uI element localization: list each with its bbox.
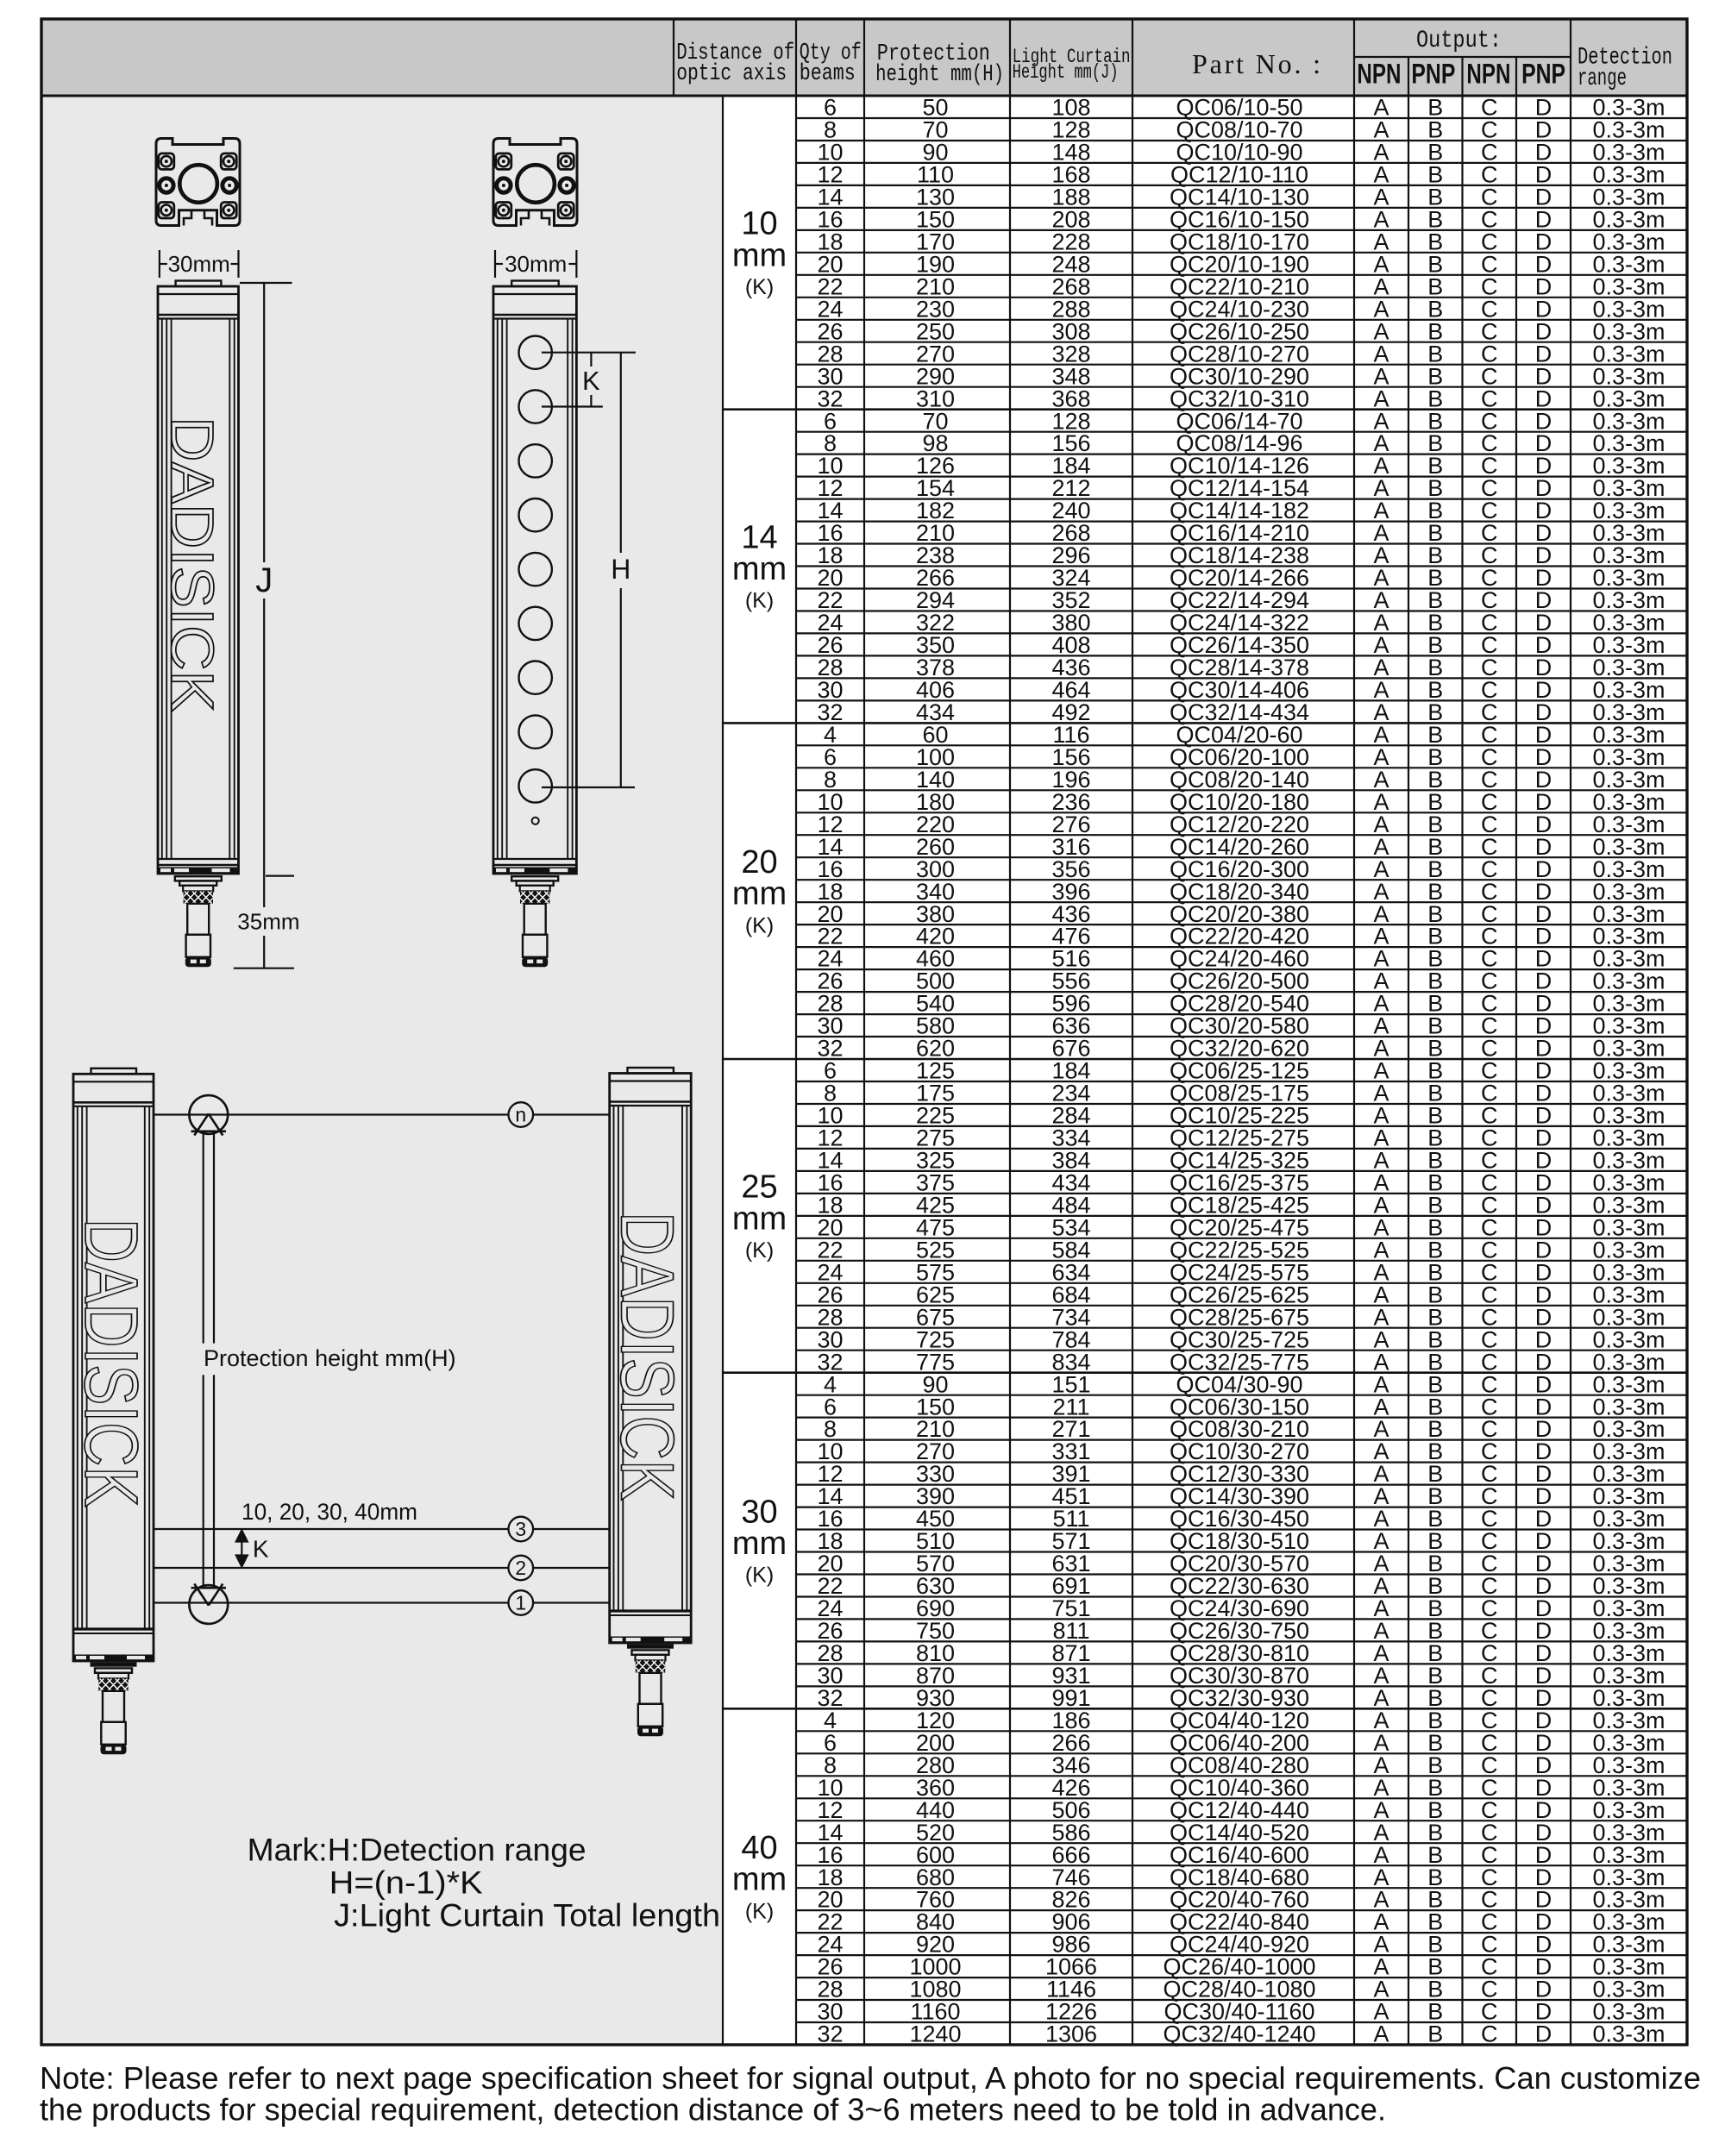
svg-text:n: n	[515, 1104, 526, 1126]
svg-text:20: 20	[741, 844, 777, 881]
svg-text:(K): (K)	[745, 1564, 774, 1588]
svg-text:beams: beams	[800, 61, 856, 87]
svg-text:H: H	[611, 554, 630, 585]
svg-text:1240: 1240	[909, 2021, 961, 2047]
svg-text:NPN: NPN	[1357, 58, 1401, 89]
svg-text:Height mm(J): Height mm(J)	[1013, 61, 1119, 84]
svg-text:3: 3	[515, 1518, 526, 1540]
svg-text:Note: Please refer to next pag: Note: Please refer to next page specific…	[40, 2060, 1701, 2096]
svg-text:(K): (K)	[745, 275, 774, 299]
svg-text:DADISICK: DADISICK	[159, 417, 226, 712]
svg-text:(K): (K)	[745, 913, 774, 937]
svg-text:K: K	[582, 366, 600, 396]
svg-text:30mm: 30mm	[505, 251, 567, 277]
svg-text:A: A	[1373, 2021, 1389, 2047]
svg-text:Output:: Output:	[1416, 28, 1502, 54]
svg-text:10: 10	[741, 206, 777, 242]
svg-text:mm: mm	[732, 237, 787, 273]
svg-text:height mm(H): height mm(H)	[875, 62, 1004, 88]
svg-text:DADISICK: DADISICK	[69, 1219, 154, 1507]
svg-text:0.3-3m: 0.3-3m	[1592, 2021, 1665, 2047]
svg-text:mm: mm	[732, 876, 787, 912]
svg-text:35mm: 35mm	[237, 909, 299, 935]
svg-text:QC32/40-1240: QC32/40-1240	[1163, 2021, 1315, 2047]
svg-text:mm: mm	[732, 1200, 787, 1237]
svg-text:(K): (K)	[745, 589, 774, 613]
svg-text:30: 30	[741, 1494, 777, 1530]
svg-text:1: 1	[515, 1592, 526, 1614]
svg-text:14: 14	[741, 519, 777, 555]
svg-text:H=(n-1)*K: H=(n-1)*K	[329, 1865, 483, 1901]
svg-text:range: range	[1578, 66, 1627, 92]
svg-text:the products for special requi: the products for special requirement, de…	[40, 2092, 1386, 2128]
svg-text:2: 2	[515, 1557, 526, 1579]
svg-text:mm: mm	[732, 1526, 787, 1562]
svg-text:10, 20, 30, 40mm: 10, 20, 30, 40mm	[241, 1499, 417, 1525]
svg-text:40: 40	[741, 1830, 777, 1866]
svg-text:Protection height mm(H): Protection height mm(H)	[204, 1345, 456, 1371]
svg-text:30mm: 30mm	[168, 251, 230, 277]
svg-text:B: B	[1427, 2021, 1443, 2047]
svg-text:(K): (K)	[745, 1238, 774, 1263]
svg-text:mm: mm	[732, 1862, 787, 1898]
svg-text:mm: mm	[732, 551, 787, 587]
svg-text:1306: 1306	[1045, 2021, 1097, 2047]
svg-text:DADISICK: DADISICK	[605, 1212, 690, 1501]
svg-text:NPN: NPN	[1466, 58, 1510, 89]
svg-text:D: D	[1535, 2021, 1552, 2047]
svg-text:PNP: PNP	[1411, 58, 1455, 89]
svg-text:J: J	[255, 561, 273, 599]
svg-text:25: 25	[741, 1169, 777, 1206]
svg-text:(K): (K)	[745, 1899, 774, 1923]
svg-text:PNP: PNP	[1521, 58, 1565, 89]
svg-text:32: 32	[817, 2021, 843, 2047]
svg-text:optic axis: optic axis	[676, 61, 787, 87]
svg-text:C: C	[1481, 2021, 1498, 2047]
svg-text:K: K	[253, 1536, 269, 1563]
svg-text:Mark:H:Detection range: Mark:H:Detection range	[248, 1833, 586, 1868]
svg-text:J:Light Curtain Total length: J:Light Curtain Total length	[334, 1898, 720, 1934]
